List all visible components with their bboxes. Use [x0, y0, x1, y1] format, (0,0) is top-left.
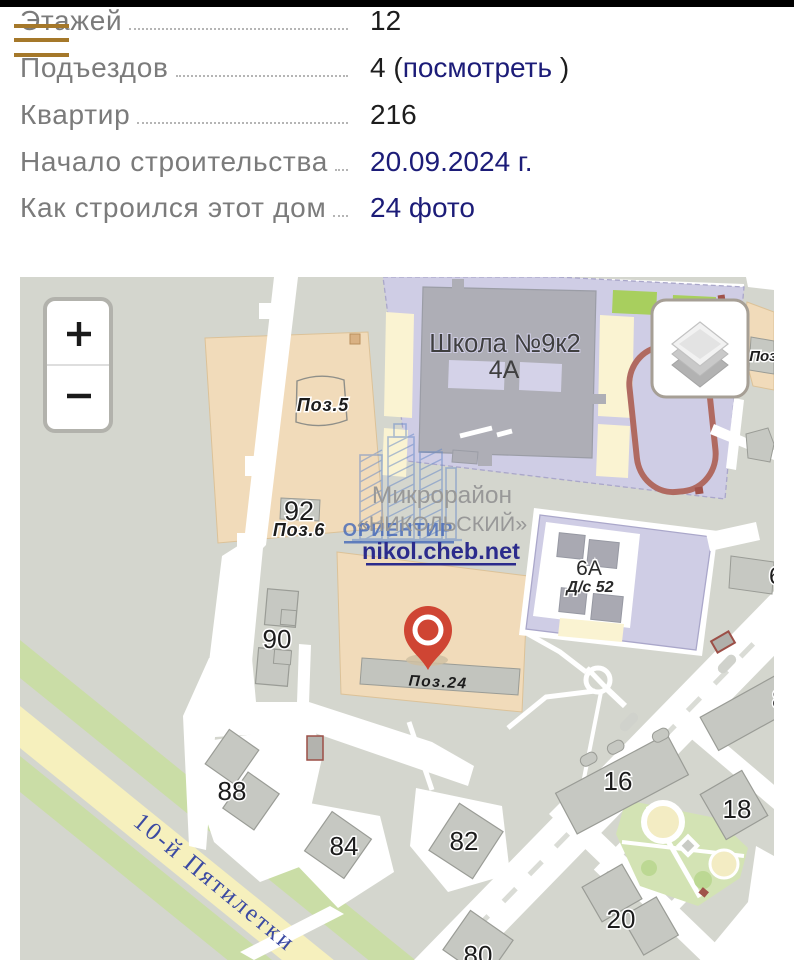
svg-text:nikol.cheb.net: nikol.cheb.net	[362, 538, 520, 564]
svg-text:16: 16	[604, 766, 633, 796]
svg-text:Поз.24: Поз.24	[408, 672, 468, 692]
svg-text:«НИКОЛЬСКИЙ»: «НИКОЛЬСКИЙ»	[357, 511, 527, 536]
svg-text:90: 90	[263, 624, 292, 654]
svg-text:80: 80	[464, 940, 493, 960]
svg-text:Д/с 52: Д/с 52	[564, 579, 613, 596]
svg-text:Поз: Поз	[749, 348, 774, 365]
svg-text:Поз.6: Поз.6	[273, 520, 325, 540]
svg-text:Поз.5: Поз.5	[297, 395, 349, 415]
svg-text:8: 8	[772, 684, 774, 714]
svg-text:88: 88	[218, 776, 247, 806]
svg-text:Микрорайон: Микрорайон	[372, 482, 512, 509]
svg-text:Школа №9к2: Школа №9к2	[429, 330, 580, 358]
svg-text:84: 84	[330, 831, 359, 861]
svg-text:20: 20	[607, 904, 636, 934]
svg-text:6: 6	[769, 563, 774, 590]
svg-text:82: 82	[450, 826, 479, 856]
svg-text:4А: 4А	[489, 356, 520, 384]
svg-text:18: 18	[723, 794, 752, 824]
svg-text:6А: 6А	[576, 557, 602, 580]
